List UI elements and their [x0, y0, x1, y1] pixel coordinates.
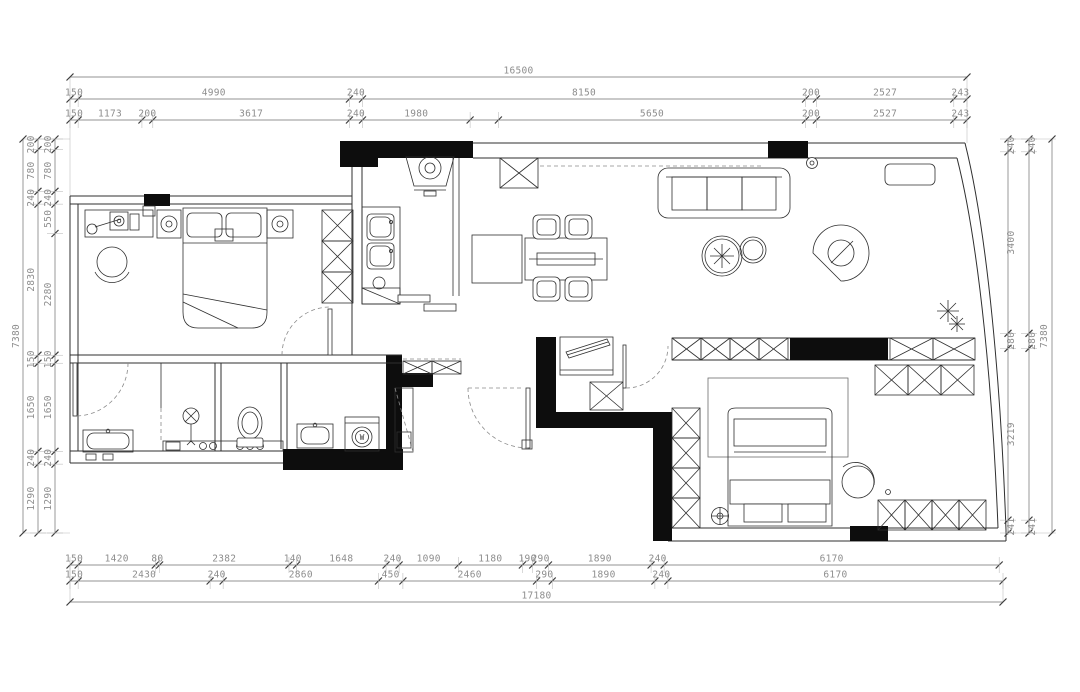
vanity-counter [163, 441, 283, 451]
master-topright-wardrobe [875, 365, 974, 395]
door-knob [886, 490, 891, 495]
sofa [658, 168, 790, 218]
dim-label: 240 [26, 189, 37, 207]
toilet [237, 407, 263, 447]
dim-label: 17180 [521, 591, 551, 602]
bedroom1-wardrobe [322, 210, 353, 303]
dim-label: 1650 [43, 395, 54, 419]
washbasin-left [83, 429, 133, 460]
dim-label: 1290 [26, 487, 37, 511]
dim-label: 3617 [239, 109, 263, 120]
dim-label: 241 [1006, 518, 1017, 536]
dim-label: 200 [802, 88, 820, 99]
sliding-door [398, 295, 456, 311]
washing-machine-label: W [360, 433, 365, 442]
dim-label: 200 [43, 135, 54, 153]
dim-label: 280 [1027, 332, 1038, 350]
living-hatch-cabinet [890, 338, 975, 360]
dim-label: 290 [535, 570, 553, 581]
dim-label: 150 [65, 570, 83, 581]
hallway-cabinet [403, 361, 461, 374]
console-cabinet [885, 164, 935, 185]
dim-label: 200 [138, 109, 156, 120]
bathroom: W [73, 363, 379, 460]
tv-cabinet [560, 337, 613, 375]
master-bottomright-wardrobe [878, 500, 986, 530]
master-door [623, 345, 668, 388]
dim-label: 1173 [98, 109, 122, 120]
hall-door [468, 388, 532, 449]
dim-label: 4990 [202, 88, 226, 99]
floor-lamp [711, 507, 729, 525]
dim-label: 240 [649, 554, 667, 565]
wall-stub [402, 373, 433, 387]
bed-master [728, 408, 832, 526]
dim-label: 2527 [873, 88, 897, 99]
dim-label: 200 [802, 109, 820, 120]
dim-label: 3219 [1006, 422, 1017, 446]
dim-label: 8150 [572, 88, 596, 99]
bench [730, 480, 830, 504]
dim-label: 240 [43, 189, 54, 207]
dim-label: 240 [384, 554, 402, 565]
dim-label: 290 [532, 554, 550, 565]
armchair [813, 225, 869, 281]
rug [708, 378, 848, 457]
dim-label: 1180 [478, 554, 502, 565]
hob-ring [373, 277, 385, 289]
washing-machine: W [345, 417, 379, 451]
dim-label: 240 [43, 449, 54, 467]
floor-plan-svg: W [0, 0, 1080, 692]
wall-step-vertical [536, 337, 556, 415]
headboard [734, 419, 826, 446]
wall-step-horizontal [536, 412, 672, 428]
coffee-tables [702, 236, 766, 276]
dim-label: 240 [26, 449, 37, 467]
hallway [395, 388, 532, 452]
bedroom-1 [85, 206, 332, 355]
master-left-wardrobe [672, 408, 700, 528]
dim-label: 1420 [105, 554, 129, 565]
master-bedroom [560, 337, 891, 526]
dining-table [525, 238, 607, 280]
dim-label: 780 [26, 161, 37, 179]
dim-label: 150 [65, 109, 83, 120]
dim-label: 2527 [873, 109, 897, 120]
wall-step-down [653, 428, 672, 541]
nightstand-left [157, 210, 181, 238]
dim-label: 150 [43, 350, 54, 368]
dining-chairs [533, 215, 592, 301]
dim-label: 2430 [132, 570, 156, 581]
tv-nook-column [590, 382, 623, 410]
entry-door-hinge [807, 158, 818, 169]
floor-plant [937, 300, 965, 332]
shower [183, 408, 199, 445]
dim-label: 140 [284, 554, 302, 565]
dim-label: 2460 [458, 570, 482, 581]
nightstand-right [267, 210, 293, 238]
desk-chair [95, 247, 129, 283]
dim-label: 1980 [404, 109, 428, 120]
dim-label: 7380 [1039, 324, 1050, 348]
table-plant [710, 244, 734, 268]
dining-area [472, 215, 607, 301]
interior-walls [161, 158, 975, 451]
side-table [472, 235, 522, 283]
wall-entry-pier [768, 141, 808, 158]
dim-label: 550 [43, 210, 54, 228]
tub-chair [842, 462, 874, 498]
dim-label: 1650 [26, 395, 37, 419]
dim-label: 243 [951, 109, 969, 120]
floor-plan-page: W [0, 0, 1080, 692]
dim-label: 780 [43, 161, 54, 179]
dim-label: 7380 [11, 324, 22, 348]
dim-label: 280 [1006, 332, 1017, 350]
dim-label: 6170 [820, 554, 844, 565]
dim-label: 16500 [503, 66, 533, 77]
entry-column [500, 158, 538, 188]
dim-label: 2830 [26, 268, 37, 292]
washbasin-right [297, 423, 333, 448]
dim-label: 240 [1006, 136, 1017, 154]
dim-label: 240 [1027, 136, 1038, 154]
dim-label: 6170 [823, 570, 847, 581]
kitchen [362, 157, 456, 311]
wall-closet-pier [790, 338, 888, 360]
dim-label: 2280 [43, 282, 54, 306]
range-hood [406, 157, 454, 196]
kitchen-sink [367, 214, 394, 269]
bed-1 [183, 208, 267, 328]
bedroom1-door [282, 307, 332, 355]
living-low-cabinet [672, 338, 788, 360]
living-room [658, 158, 965, 333]
dim-label: 241 [1027, 518, 1038, 536]
dimensions-layer: 1504990240815020025272431501173200361724… [11, 66, 1056, 606]
wall-pier [144, 194, 170, 206]
dim-label: 200 [26, 135, 37, 153]
dim-label: 150 [65, 554, 83, 565]
wall-bath-bottom [283, 449, 403, 470]
dim-label: 2382 [212, 554, 236, 565]
dim-label: 240 [208, 570, 226, 581]
dim-label: 1890 [588, 554, 612, 565]
dim-label: 1890 [592, 570, 616, 581]
dim-label: 243 [951, 88, 969, 99]
dim-label: 240 [347, 88, 365, 99]
dim-label: 2860 [289, 570, 313, 581]
dim-label: 3400 [1006, 231, 1017, 255]
dim-label: 1290 [43, 487, 54, 511]
dim-label: 1648 [329, 554, 353, 565]
dim-label: 240 [347, 109, 365, 120]
dim-label: 150 [65, 88, 83, 99]
dim-label: 5650 [640, 109, 664, 120]
dim-label: 240 [652, 570, 670, 581]
dim-label: 1090 [417, 554, 441, 565]
dim-label: 150 [26, 350, 37, 368]
curved-wall-inner [957, 158, 998, 528]
dim-label: 80 [151, 554, 163, 565]
dim-label: 450 [382, 570, 400, 581]
bath-door [73, 363, 128, 416]
wall-pier [850, 526, 888, 541]
